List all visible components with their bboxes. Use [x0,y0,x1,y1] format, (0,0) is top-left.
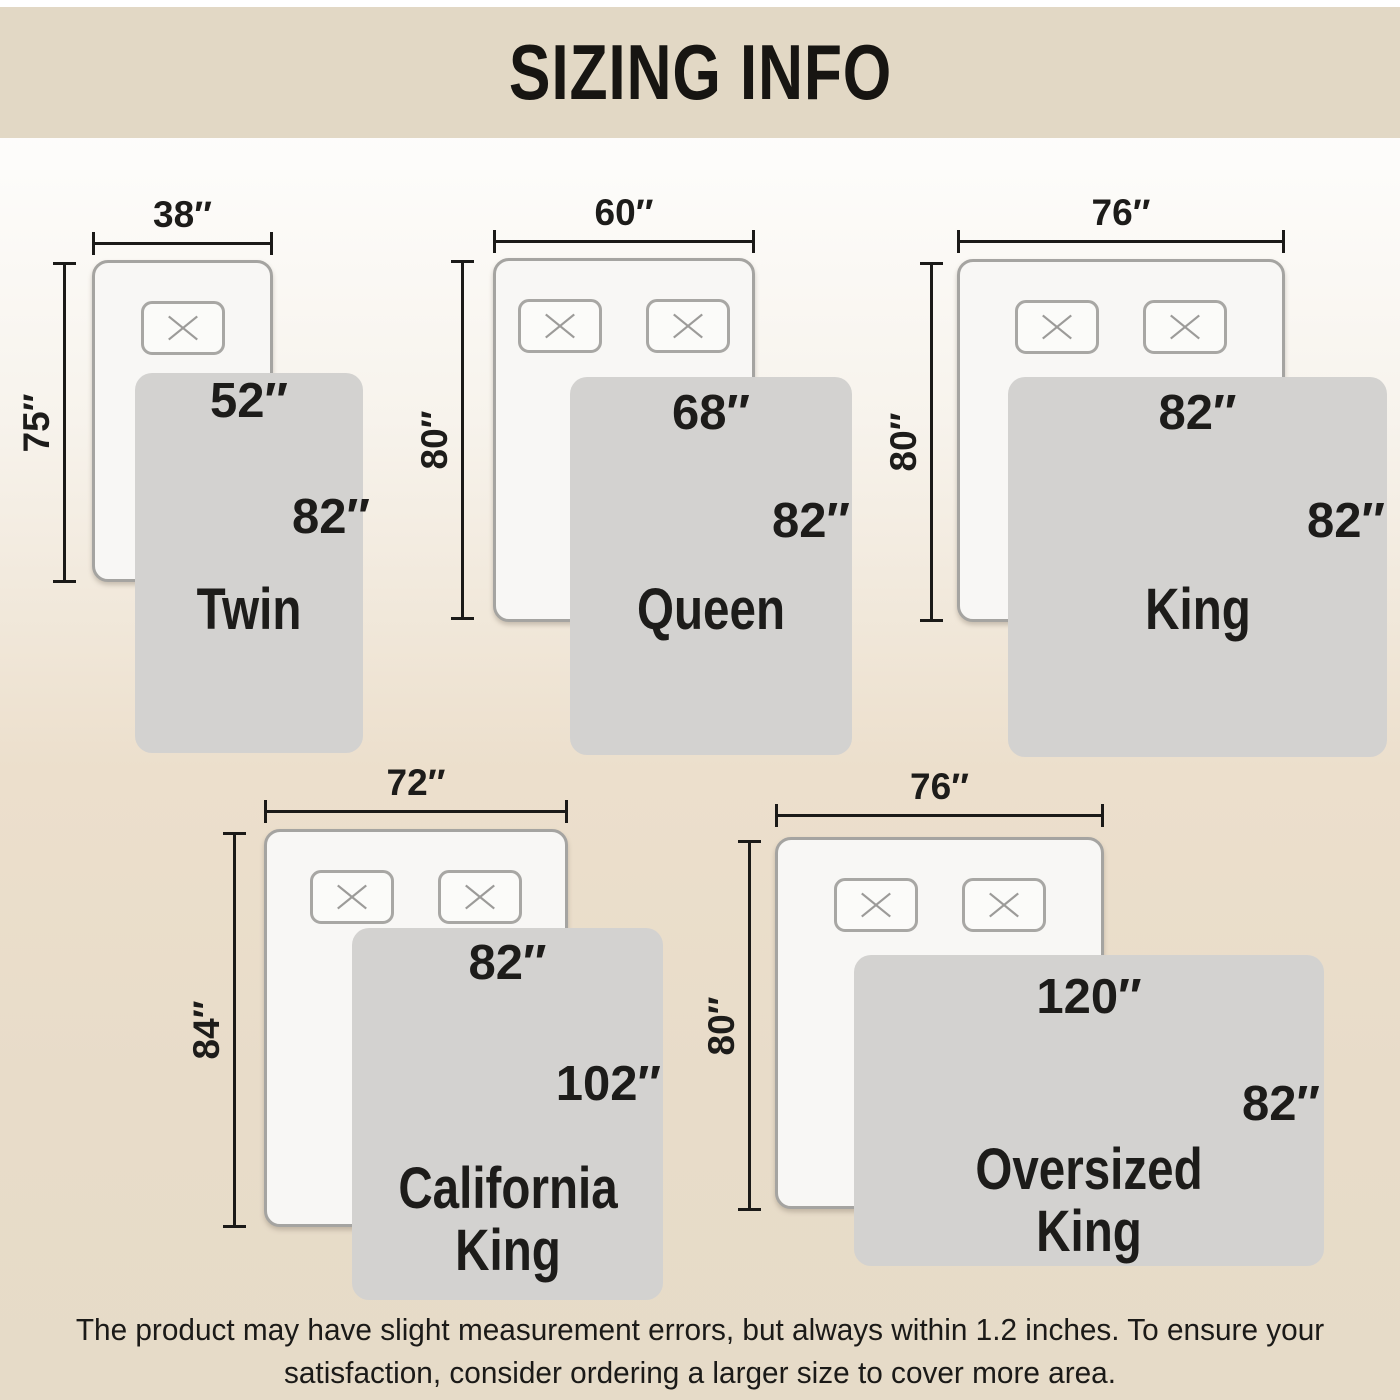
pillow [834,878,918,932]
pillow [310,870,394,924]
blanket-rect: 82″82″King [1008,377,1387,757]
pillow-row [960,300,1282,354]
pillow-x-icon [1018,303,1096,351]
blanket-length-label: 82″ [1307,493,1385,549]
blanket-name-label: CaliforniaKing [398,1158,617,1282]
pillow [141,301,225,355]
pillow-x-icon [649,302,727,350]
pillow-x-icon [144,304,222,352]
mattress-length-label: 80″ [883,413,925,472]
mattress-length-label: 80″ [414,411,456,470]
mattress-width-label: 72″ [387,762,446,804]
blanket-name-line: Oversized [975,1139,1202,1201]
blanket-name-line: California [398,1158,617,1220]
pillow-x-icon [313,873,391,921]
length-dimension-line: 80″ [930,262,933,622]
width-dimension-line: 38″ [92,242,273,245]
pillow [646,299,730,353]
mattress-length-label: 84″ [186,1001,228,1060]
blanket-length-label: 82″ [292,489,370,545]
width-dimension-line: 76″ [957,240,1285,243]
blanket-length-label: 82″ [1242,1076,1320,1132]
disclaimer-line-1: The product may have slight measurement … [28,1308,1372,1351]
pillow-x-icon [837,881,915,929]
pillow-row [95,301,270,355]
blanket-width-label: 82″ [1159,385,1237,441]
disclaimer-line-2: satisfaction, consider ordering a larger… [28,1351,1372,1394]
banner: SIZING INFO [0,7,1400,138]
blanket-length-label: 102″ [556,1056,661,1112]
blanket-width-label: 82″ [469,935,547,991]
length-dimension-line: 84″ [233,832,236,1228]
blanket-width-label: 52″ [210,373,288,429]
blanket-length-label: 82″ [772,493,850,549]
blanket-rect: 82″102″CaliforniaKing [352,928,663,1300]
mattress-length-label: 75″ [16,393,58,452]
pillow [438,870,522,924]
pillow-x-icon [965,881,1043,929]
blanket-name-label: Twin [197,579,302,641]
pillow-x-icon [521,302,599,350]
blanket-name-line: Twin [197,579,302,641]
length-dimension-line: 75″ [63,262,66,583]
page-title: SIZING INFO [508,27,891,118]
blanket-name-label: OversizedKing [975,1139,1202,1263]
mattress-width-label: 76″ [1092,192,1151,234]
pillow-x-icon [1146,303,1224,351]
mattress-width-label: 76″ [910,766,969,808]
pillow-row [267,870,565,924]
mattress-width-label: 38″ [153,194,212,236]
width-dimension-line: 72″ [264,810,568,813]
blanket-name-line: King [398,1220,617,1282]
blanket-rect: 68″82″Queen [570,377,852,755]
blanket-name-label: Queen [637,579,785,641]
pillow [1015,300,1099,354]
blanket-name-line: King [975,1201,1202,1263]
pillow-row [496,299,752,353]
blanket-name-label: King [1145,579,1251,641]
pillow [518,299,602,353]
width-dimension-line: 76″ [775,814,1104,817]
length-dimension-line: 80″ [748,840,751,1211]
mattress-width-label: 60″ [595,192,654,234]
blanket-rect: 120″82″OversizedKing [854,955,1324,1266]
mattress-length-label: 80″ [701,996,743,1055]
blanket-width-label: 120″ [1036,969,1141,1025]
pillow-x-icon [441,873,519,921]
pillow [962,878,1046,932]
disclaimer: The product may have slight measurement … [28,1308,1372,1394]
width-dimension-line: 60″ [493,240,755,243]
blanket-rect: 52″82″Twin [135,373,363,753]
length-dimension-line: 80″ [461,260,464,620]
blanket-width-label: 68″ [672,385,750,441]
pillow [1143,300,1227,354]
pillow-row [778,878,1101,932]
blanket-name-line: Queen [637,579,785,641]
blanket-name-line: King [1145,579,1251,641]
